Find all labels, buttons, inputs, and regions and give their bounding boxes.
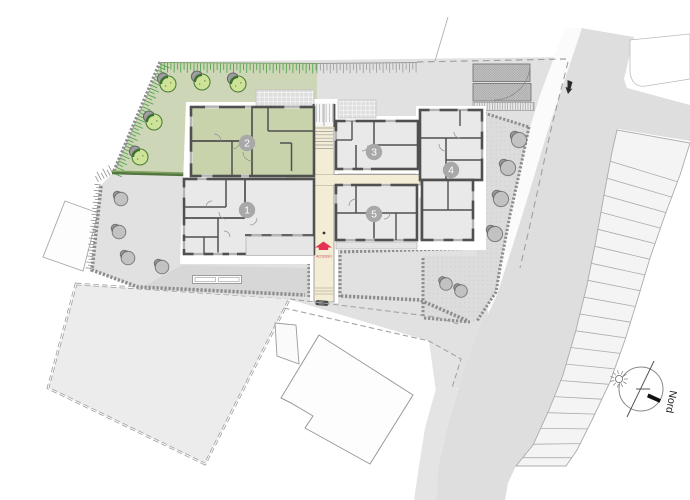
svg-text:1: 1 <box>244 205 250 217</box>
svg-text:4: 4 <box>448 165 454 177</box>
svg-text:2: 2 <box>244 138 250 150</box>
svg-text:ACCESSO: ACCESSO <box>316 255 332 259</box>
svg-text:3: 3 <box>371 147 377 159</box>
svg-text:5: 5 <box>371 209 377 221</box>
